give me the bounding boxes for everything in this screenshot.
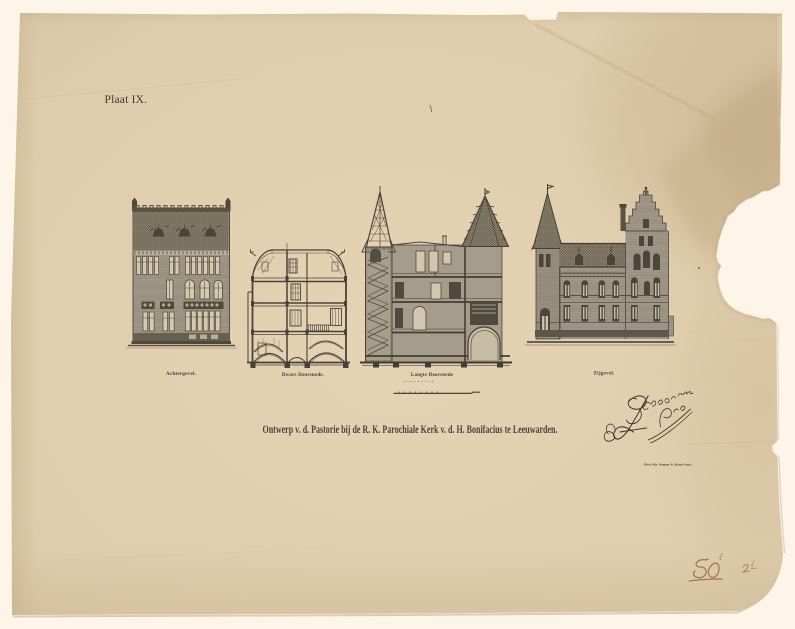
svg-text:Langte Doorsnede: Langte Doorsnede: [411, 373, 454, 378]
svg-text:Zijgevel.: Zijgevel.: [594, 371, 615, 377]
svg-text:Dwars Doorsnede.: Dwars Doorsnede.: [282, 373, 325, 378]
svg-text:Achtergevel.: Achtergevel.: [166, 371, 197, 377]
svg-text:Plaat IX.: Plaat IX.: [105, 94, 148, 106]
svg-text:Phot. lith. Wegner & Mottu Ams: Phot. lith. Wegner & Mottu Amst.: [644, 463, 692, 467]
svg-text:Ontwerp v. d. Pastorie bij de: Ontwerp v. d. Pastorie bij de R. K. Paro…: [263, 424, 558, 436]
